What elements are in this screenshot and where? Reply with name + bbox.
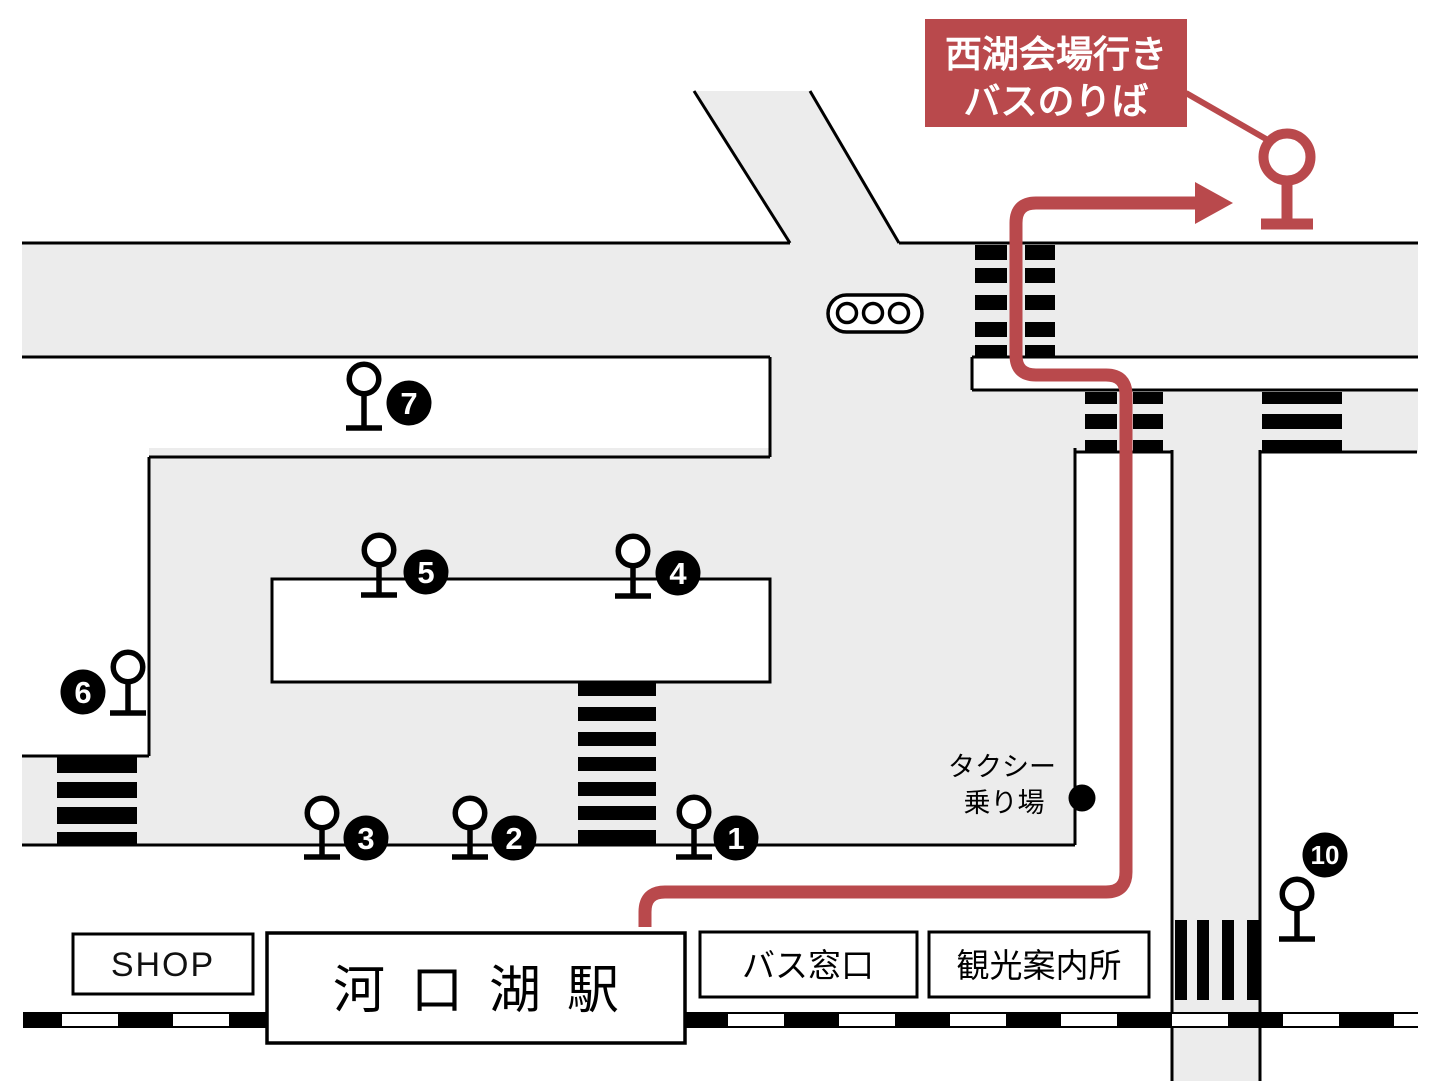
traffic-island — [272, 579, 770, 682]
crosswalk-vertical-road-top — [1262, 392, 1342, 452]
svg-text:6: 6 — [74, 675, 91, 710]
bus-stop-pole-icon — [364, 535, 394, 565]
road-top-horizontal — [22, 243, 1418, 357]
svg-text:10: 10 — [1311, 840, 1340, 870]
bus-stop-pole-icon — [349, 364, 379, 394]
station-area-map: SHOP 河口湖駅 バス窓口 観光案内所 タクシー 乗り場 西湖会場行き バスの… — [0, 0, 1440, 1081]
shop-label: SHOP — [111, 946, 215, 984]
svg-text:5: 5 — [417, 555, 434, 590]
road-connector — [770, 357, 974, 457]
taxi-stand-dot-icon — [1069, 785, 1096, 812]
bus-stop-6: 6 — [61, 652, 147, 714]
building-bus-counter: バス窓口 — [700, 932, 917, 997]
banner-leader-line — [1186, 93, 1266, 139]
bus-counter-label: バス窓口 — [742, 947, 874, 984]
svg-text:2: 2 — [505, 821, 522, 856]
building-shop: SHOP — [73, 934, 253, 994]
taxi-label-line1: タクシー — [948, 752, 1056, 782]
svg-text:7: 7 — [400, 386, 417, 421]
destination-banner-group: 西湖会場行き バスのりば — [925, 19, 1313, 224]
saiko-bus-stop-icon — [1261, 134, 1313, 225]
bus-stop-pole-icon — [679, 797, 709, 827]
bus-stop-pole-icon — [113, 652, 143, 682]
banner-line2: バスのりば — [964, 81, 1149, 122]
railway-line — [23, 1012, 1418, 1028]
taxi-label-line2: 乗り場 — [964, 788, 1045, 818]
banner-line1: 西湖会場行き — [945, 34, 1167, 75]
bus-stop-pole-icon — [1282, 879, 1312, 909]
building-tourist-info: 観光案内所 — [929, 932, 1149, 997]
traffic-light-icon — [828, 295, 922, 332]
bus-stop-7: 7 — [346, 364, 432, 428]
svg-text:1: 1 — [727, 821, 744, 856]
map-canvas: SHOP 河口湖駅 バス窓口 観光案内所 タクシー 乗り場 西湖会場行き バスの… — [0, 0, 1440, 1081]
tourist-info-label: 観光案内所 — [957, 947, 1122, 984]
road-band-right — [972, 390, 1418, 452]
svg-text:4: 4 — [669, 556, 687, 591]
bus-stop-10: 10 — [1279, 833, 1348, 940]
bus-stop-pole-icon — [307, 798, 337, 828]
building-station: 河口湖駅 — [267, 933, 685, 1043]
route-arrowhead-icon — [1195, 182, 1233, 224]
bus-stop-pole-icon — [618, 536, 648, 566]
bus-stop-pole-icon — [455, 798, 485, 828]
station-label: 河口湖駅 — [333, 962, 645, 1020]
svg-text:3: 3 — [357, 821, 374, 856]
road-diagonal — [694, 91, 899, 243]
